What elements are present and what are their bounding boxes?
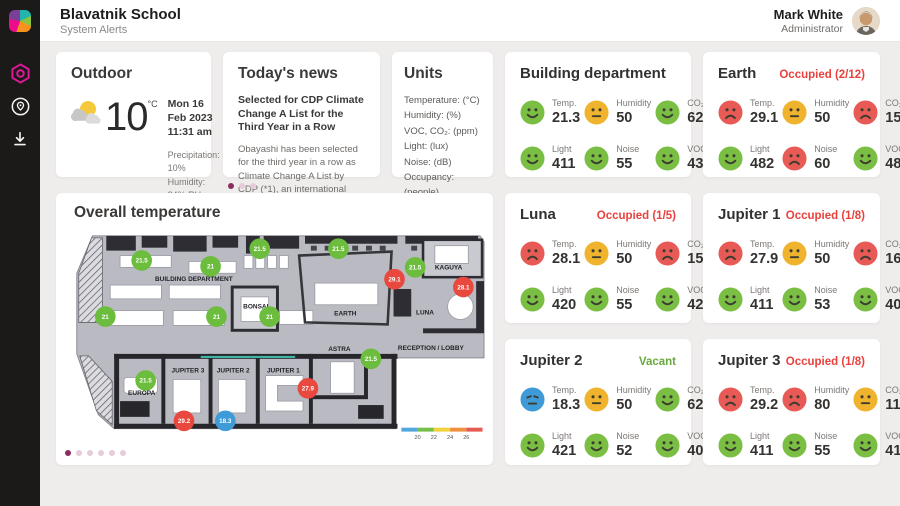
room-title: Jupiter 2 xyxy=(520,352,583,369)
svg-text:21.5: 21.5 xyxy=(365,356,378,363)
metric-label: Light xyxy=(552,286,576,296)
metric-light: Light411 xyxy=(718,286,778,313)
metric-noise: Noise53 xyxy=(782,286,849,313)
metric-label: Noise xyxy=(616,432,639,442)
neutral-face-icon xyxy=(584,387,609,412)
metric-value: 55 xyxy=(616,156,639,172)
metric-text: Light411 xyxy=(750,432,773,459)
room-title: Earth xyxy=(718,65,756,82)
temperature-badge: 21.5 xyxy=(361,348,382,369)
metric-humidity: Humidity50 xyxy=(584,386,651,413)
metric-humidity: Humidity50 xyxy=(782,99,849,126)
metric-value: 480 xyxy=(885,156,900,172)
metric-value: 29.2 xyxy=(750,397,778,413)
svg-text:21.5: 21.5 xyxy=(332,246,345,253)
metric-co: CO₂1100 xyxy=(853,386,900,413)
metric-voc: VOC407 xyxy=(853,286,900,313)
room-title: Jupiter 1 xyxy=(718,206,781,223)
metric-label: Temp. xyxy=(552,386,580,396)
svg-text:21.5: 21.5 xyxy=(409,265,422,272)
svg-text:21: 21 xyxy=(213,314,220,321)
happy-face-icon xyxy=(655,146,680,171)
metric-value: 27.9 xyxy=(750,251,778,267)
metric-value: 50 xyxy=(616,397,651,413)
metric-voc: VOC411 xyxy=(853,432,900,459)
metric-text: Temp.29.2 xyxy=(750,386,778,413)
units-list: Temperature: (°C)Humidity: (%)VOC, CO₂: … xyxy=(404,93,481,201)
metric-temp: Temp.29.2 xyxy=(718,386,778,413)
metric-text: Humidity50 xyxy=(616,240,651,267)
metric-label: Light xyxy=(750,145,774,155)
metric-label: Temp. xyxy=(552,240,580,250)
metric-temp: Temp.29.1 xyxy=(718,99,778,126)
page-title: Blavatnik School xyxy=(60,6,181,23)
metric-label: VOC xyxy=(885,145,900,155)
metric-value: 411 xyxy=(750,443,773,459)
svg-text:27.9: 27.9 xyxy=(302,386,315,393)
outdoor-precipitation: Precipitation: 10% xyxy=(168,149,220,176)
room-metrics: Temp.21.3Humidity50CO₂622Light411Noise55… xyxy=(520,99,676,172)
metric-light: Light411 xyxy=(718,432,778,459)
page-dot[interactable] xyxy=(76,450,82,456)
metric-temp: Temp.21.3 xyxy=(520,99,580,126)
metric-text: Noise53 xyxy=(814,286,837,313)
plan-room-label: ASTRA xyxy=(328,346,351,353)
metric-text: Light482 xyxy=(750,145,774,172)
metric-label: Light xyxy=(552,145,575,155)
metric-text: Light421 xyxy=(552,432,576,459)
room-card-header: Building department xyxy=(520,65,676,82)
download-icon xyxy=(11,130,29,148)
metric-label: Noise xyxy=(814,145,837,155)
temperature-badge: 21 xyxy=(259,306,280,327)
metric-value: 18.3 xyxy=(552,397,580,413)
metric-text: Light420 xyxy=(552,286,576,313)
neutral-face-icon xyxy=(782,100,807,125)
room-metrics: Temp.28.1Humidity50CO₂1510Light420Noise5… xyxy=(520,240,676,313)
metric-text: Noise55 xyxy=(616,286,639,313)
svg-text:18.3: 18.3 xyxy=(219,418,232,425)
room-status-badge: Occupied (1/5) xyxy=(597,210,676,222)
metric-value: 411 xyxy=(885,443,900,459)
metric-value: 1600 xyxy=(885,251,900,267)
temperature-badge: 18.3 xyxy=(215,410,236,431)
svg-text:28.1: 28.1 xyxy=(457,284,470,291)
header-titles: Blavatnik School System Alerts xyxy=(60,6,181,36)
floorplan-card: Overall temperature xyxy=(56,193,493,465)
metric-text: Noise52 xyxy=(616,432,639,459)
metric-label: Noise xyxy=(616,145,639,155)
temperature-badge: 29.1 xyxy=(384,269,405,290)
metric-value: 1100 xyxy=(885,397,900,413)
room-card-header: Jupiter 2Vacant xyxy=(520,352,676,369)
temperature-badge: 21 xyxy=(200,256,221,277)
outdoor-temp-unit: °C xyxy=(148,99,158,109)
metric-label: Temp. xyxy=(552,99,580,109)
metric-text: Temp.21.3 xyxy=(552,99,580,126)
happy-face-icon xyxy=(782,433,807,458)
metric-light: Light420 xyxy=(520,286,580,313)
room-card-earth: EarthOccupied (2/12)Temp.29.1Humidity50C… xyxy=(703,52,880,177)
page-dot[interactable] xyxy=(228,183,234,189)
metric-co: CO₂1530 xyxy=(853,99,900,126)
metric-humidity: Humidity50 xyxy=(584,99,651,126)
neutral-face-icon xyxy=(584,241,609,266)
metric-noise: Noise55 xyxy=(584,286,651,313)
metric-value: 28.1 xyxy=(552,251,580,267)
happy-face-icon xyxy=(782,287,807,312)
room-card-building-department: Building departmentTemp.21.3Humidity50CO… xyxy=(505,52,691,177)
legend-tick: 26 xyxy=(463,435,469,440)
legend-tick: 22 xyxy=(431,435,437,440)
metric-label: Humidity xyxy=(616,386,651,396)
sad-face-icon xyxy=(520,241,545,266)
room-luna-table xyxy=(448,294,474,320)
svg-text:21.5: 21.5 xyxy=(254,246,267,253)
metric-text: Temp.28.1 xyxy=(552,240,580,267)
sad-face-icon xyxy=(718,100,743,125)
dashboard-grid: Outdoor 10 °C Mon 16 Feb 20 xyxy=(56,52,882,465)
brand-logo[interactable] xyxy=(9,10,31,32)
unit-line: Noise: (dB) xyxy=(404,155,481,170)
plan-room-label: KAGUYA xyxy=(435,264,463,271)
neutral-face-icon xyxy=(853,387,878,412)
metric-label: Humidity xyxy=(814,386,849,396)
temperature-badge: 21.5 xyxy=(131,250,152,271)
page-dot[interactable] xyxy=(109,450,115,456)
happy-face-icon xyxy=(520,100,545,125)
metric-value: 60 xyxy=(814,156,837,172)
metric-noise: Noise55 xyxy=(782,432,849,459)
plan-room-label: BUILDING DEPARTMENT xyxy=(155,276,233,283)
metric-text: VOC411 xyxy=(885,432,900,459)
metric-label: Temp. xyxy=(750,240,778,250)
svg-text:29.2: 29.2 xyxy=(178,418,191,425)
room-status-badge: Occupied (1/8) xyxy=(786,210,865,222)
sidebar-item-locations[interactable] xyxy=(9,95,31,117)
sidebar-item-alerts[interactable] xyxy=(9,62,31,84)
outdoor-title: Outdoor xyxy=(71,65,196,83)
room-metrics: Temp.27.9Humidity50CO₂1600Light411Noise5… xyxy=(718,240,865,313)
avatar[interactable] xyxy=(852,7,880,35)
plan-room-label: JUPITER 2 xyxy=(217,368,250,375)
room-card-header: EarthOccupied (2/12) xyxy=(718,65,865,82)
metric-noise: Noise52 xyxy=(584,432,651,459)
metric-temp: Temp.28.1 xyxy=(520,240,580,267)
sad-face-icon xyxy=(853,100,878,125)
svg-text:29.1: 29.1 xyxy=(388,276,401,283)
metric-text: Noise55 xyxy=(814,432,837,459)
happy-face-icon xyxy=(655,100,680,125)
page-dot[interactable] xyxy=(87,450,93,456)
unit-line: Humidity: (%) xyxy=(404,108,481,123)
metric-value: 421 xyxy=(552,443,576,459)
metric-temp: Temp.18.3 xyxy=(520,386,580,413)
metric-label: Humidity xyxy=(814,99,849,109)
metric-label: Humidity xyxy=(616,240,651,250)
page-dot[interactable] xyxy=(98,450,104,456)
metric-text: Humidity50 xyxy=(616,99,651,126)
glass-wall xyxy=(201,356,295,358)
metric-label: Light xyxy=(552,432,576,442)
room-metrics: Temp.29.2Humidity80CO₂1100Light411Noise5… xyxy=(718,386,865,459)
page-dot[interactable] xyxy=(120,450,126,456)
happy-face-icon xyxy=(655,387,680,412)
metric-text: VOC480 xyxy=(885,145,900,172)
temperature-badge: 21 xyxy=(206,306,227,327)
happy-face-icon xyxy=(718,146,743,171)
temperature-badge: 21.5 xyxy=(405,257,426,278)
metric-value: 55 xyxy=(616,297,639,313)
metric-text: Light411 xyxy=(552,145,575,172)
sad-face-icon xyxy=(782,387,807,412)
temperature-badge: 28.1 xyxy=(453,277,474,298)
svg-text:21: 21 xyxy=(266,314,273,321)
user-menu[interactable]: Mark White Administrator xyxy=(774,7,880,35)
plan-room-label: JUPITER 1 xyxy=(267,368,300,375)
metric-value: 411 xyxy=(552,156,575,172)
outdoor-temperature: 10 xyxy=(105,97,148,137)
room-metrics: Temp.29.1Humidity50CO₂1530Light482Noise6… xyxy=(718,99,865,172)
metric-value: 420 xyxy=(552,297,576,313)
page-subtitle: System Alerts xyxy=(60,24,181,36)
plan-room-label: EARTH xyxy=(334,311,357,318)
metric-label: CO₂ xyxy=(885,386,900,396)
metric-value: 50 xyxy=(814,251,849,267)
happy-face-icon xyxy=(584,287,609,312)
temperature-badge: 21.5 xyxy=(328,238,349,259)
svg-text:21.5: 21.5 xyxy=(140,378,153,385)
metric-text: VOC407 xyxy=(885,286,900,313)
temperature-badge: 29.2 xyxy=(174,410,195,431)
room-card-jupiter-2: Jupiter 2VacantTemp.18.3Humidity50CO₂621… xyxy=(505,339,691,465)
metric-voc: VOC480 xyxy=(853,145,900,172)
app-window: Blavatnik School System Alerts Mark Whit… xyxy=(0,0,900,506)
metric-text: Noise55 xyxy=(616,145,639,172)
unit-line: VOC, CO₂: (ppm) xyxy=(404,124,481,139)
room-title: Luna xyxy=(520,206,556,223)
metric-label: Light xyxy=(750,286,773,296)
cold-face-icon xyxy=(520,387,545,412)
metric-value: 482 xyxy=(750,156,774,172)
metric-label: Temp. xyxy=(750,386,778,396)
happy-face-icon xyxy=(520,146,545,171)
svg-text:21.5: 21.5 xyxy=(136,258,149,265)
metric-text: Humidity50 xyxy=(814,240,849,267)
happy-face-icon xyxy=(718,433,743,458)
metric-light: Light421 xyxy=(520,432,580,459)
metric-text: Light411 xyxy=(750,286,773,313)
metric-text: Humidity50 xyxy=(814,99,849,126)
metric-light: Light482 xyxy=(718,145,778,172)
metric-text: CO₂1600 xyxy=(885,240,900,267)
temperature-badge: 21 xyxy=(95,306,116,327)
news-pagination xyxy=(228,183,256,189)
metric-value: 407 xyxy=(885,297,900,313)
floor-plan-map: BUILDING DEPARTMENTBONSAIEARTHKAGUYALUNA… xyxy=(63,228,486,440)
svg-text:21: 21 xyxy=(207,264,214,271)
partly-cloudy-icon xyxy=(71,97,105,127)
room-card-header: Jupiter 3Occupied (1/8) xyxy=(718,352,865,369)
metric-noise: Noise55 xyxy=(584,145,651,172)
happy-face-icon xyxy=(655,287,680,312)
svg-text:21: 21 xyxy=(102,314,109,321)
units-card: Units Temperature: (°C)Humidity: (%)VOC,… xyxy=(392,52,493,177)
metric-value: 53 xyxy=(814,297,837,313)
room-title: Jupiter 3 xyxy=(718,352,781,369)
page-dot[interactable] xyxy=(250,183,256,189)
metric-humidity: Humidity50 xyxy=(584,240,651,267)
metric-text: Temp.27.9 xyxy=(750,240,778,267)
metric-text: Noise60 xyxy=(814,145,837,172)
metric-label: Noise xyxy=(814,286,837,296)
metric-value: 50 xyxy=(616,251,651,267)
news-card: Today's news Selected for CDP Climate Ch… xyxy=(223,52,380,177)
room-card-jupiter-1: Jupiter 1Occupied (1/8)Temp.27.9Humidity… xyxy=(703,193,880,323)
metric-light: Light411 xyxy=(520,145,580,172)
happy-face-icon xyxy=(853,433,878,458)
room-card-header: Jupiter 1Occupied (1/8) xyxy=(718,206,865,223)
sidebar-item-download[interactable] xyxy=(9,128,31,150)
metric-value: 52 xyxy=(616,443,639,459)
news-title: Today's news xyxy=(238,65,365,83)
metric-text: Temp.29.1 xyxy=(750,99,778,126)
avatar-photo xyxy=(852,7,880,35)
sidebar-nav xyxy=(0,0,40,506)
neutral-face-icon xyxy=(584,100,609,125)
metric-value: 1530 xyxy=(885,110,900,126)
room-card-luna: LunaOccupied (1/5)Temp.28.1Humidity50CO₂… xyxy=(505,193,691,323)
plan-room-label: JUPITER 3 xyxy=(172,368,205,375)
top-header: Blavatnik School System Alerts Mark Whit… xyxy=(40,0,900,42)
outdoor-date: Mon 16 Feb 2023 xyxy=(168,97,220,125)
metric-co: CO₂1600 xyxy=(853,240,900,267)
metric-value: 29.1 xyxy=(750,110,778,126)
happy-face-icon xyxy=(520,287,545,312)
units-title: Units xyxy=(404,65,481,83)
happy-face-icon xyxy=(584,433,609,458)
outdoor-card: Outdoor 10 °C Mon 16 Feb 20 xyxy=(56,52,211,177)
unit-line: Temperature: (°C) xyxy=(404,93,481,108)
metric-label: CO₂ xyxy=(885,240,900,250)
room-status-badge: Occupied (1/8) xyxy=(786,356,865,368)
metric-label: Noise xyxy=(814,432,837,442)
plan-room-label: RECEPTION / LOBBY xyxy=(398,345,465,352)
metric-label: Humidity xyxy=(616,99,651,109)
map-pin-icon xyxy=(11,97,30,116)
news-headline: Selected for CDP Climate Change A List f… xyxy=(238,94,365,135)
happy-face-icon xyxy=(853,287,878,312)
unit-line: Light: (lux) xyxy=(404,139,481,154)
sad-face-icon xyxy=(718,241,743,266)
sad-face-icon xyxy=(782,146,807,171)
legend-tick: 20 xyxy=(415,435,421,440)
room-status-badge: Occupied (2/12) xyxy=(779,69,865,81)
metric-label: Light xyxy=(750,432,773,442)
metric-label: Humidity xyxy=(814,240,849,250)
metric-label: CO₂ xyxy=(885,99,900,109)
metric-text: CO₂1530 xyxy=(885,99,900,126)
hexagon-alerts-icon xyxy=(10,63,31,84)
temperature-badge: 27.9 xyxy=(298,378,319,399)
legend-tick: 24 xyxy=(447,435,453,440)
metric-text: Humidity80 xyxy=(814,386,849,413)
room-metrics: Temp.18.3Humidity50CO₂621Light421Noise52… xyxy=(520,386,676,459)
happy-face-icon xyxy=(655,433,680,458)
metric-value: 21.3 xyxy=(552,110,580,126)
sad-face-icon xyxy=(853,241,878,266)
sad-face-icon xyxy=(718,387,743,412)
metric-noise: Noise60 xyxy=(782,145,849,172)
metric-text: CO₂1100 xyxy=(885,386,900,413)
metric-value: 80 xyxy=(814,397,849,413)
happy-face-icon xyxy=(584,146,609,171)
plan-room-label: LUNA xyxy=(416,310,434,317)
metric-label: VOC xyxy=(885,432,900,442)
page-dot[interactable] xyxy=(239,183,245,189)
metric-value: 50 xyxy=(616,110,651,126)
metric-label: Noise xyxy=(616,286,639,296)
floorplan-title: Overall temperature xyxy=(74,204,486,222)
metric-humidity: Humidity50 xyxy=(782,240,849,267)
room-card-jupiter-3: Jupiter 3Occupied (1/8)Temp.29.2Humidity… xyxy=(703,339,880,465)
page-dot[interactable] xyxy=(65,450,71,456)
temperature-badge: 21.5 xyxy=(249,238,270,259)
neutral-face-icon xyxy=(782,241,807,266)
user-name: Mark White xyxy=(774,7,843,22)
metric-label: Temp. xyxy=(750,99,778,109)
room-title: Building department xyxy=(520,65,666,82)
metric-value: 55 xyxy=(814,443,837,459)
room-card-header: LunaOccupied (1/5) xyxy=(520,206,676,223)
user-role: Administrator xyxy=(774,23,843,35)
metric-label: VOC xyxy=(885,286,900,296)
metric-text: Temp.18.3 xyxy=(552,386,580,413)
metric-temp: Temp.27.9 xyxy=(718,240,778,267)
room-status-badge: Vacant xyxy=(639,356,676,368)
metric-humidity: Humidity80 xyxy=(782,386,849,413)
metric-value: 50 xyxy=(814,110,849,126)
sad-face-icon xyxy=(655,241,680,266)
floorplan-pagination xyxy=(65,450,126,456)
metric-value: 411 xyxy=(750,297,773,313)
temperature-badge: 21.5 xyxy=(135,370,156,391)
plan-room-label: EUROPA xyxy=(128,390,156,397)
metric-text: Humidity50 xyxy=(616,386,651,413)
outdoor-time: 11:31 am xyxy=(168,125,220,139)
happy-face-icon xyxy=(520,433,545,458)
happy-face-icon xyxy=(718,287,743,312)
happy-face-icon xyxy=(853,146,878,171)
